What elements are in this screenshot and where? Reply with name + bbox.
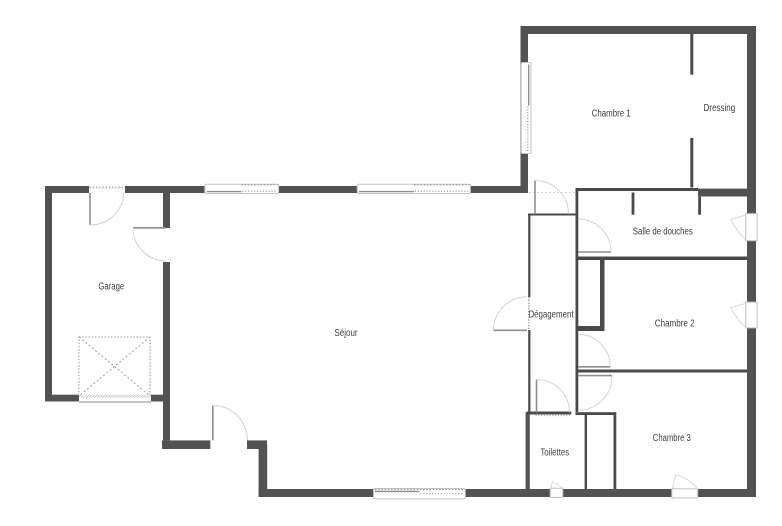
svg-text:Salle de douches: Salle de douches [633, 226, 693, 237]
svg-text:Séjour: Séjour [334, 328, 358, 339]
svg-text:Dégagement: Dégagement [529, 309, 574, 320]
svg-text:Chambre 3: Chambre 3 [653, 433, 691, 444]
svg-text:Dressing: Dressing [704, 103, 736, 114]
svg-text:Chambre 2: Chambre 2 [655, 318, 695, 329]
svg-text:Garage: Garage [98, 282, 124, 293]
svg-text:Toilettes: Toilettes [540, 448, 569, 459]
svg-text:Chambre 1: Chambre 1 [592, 108, 631, 119]
